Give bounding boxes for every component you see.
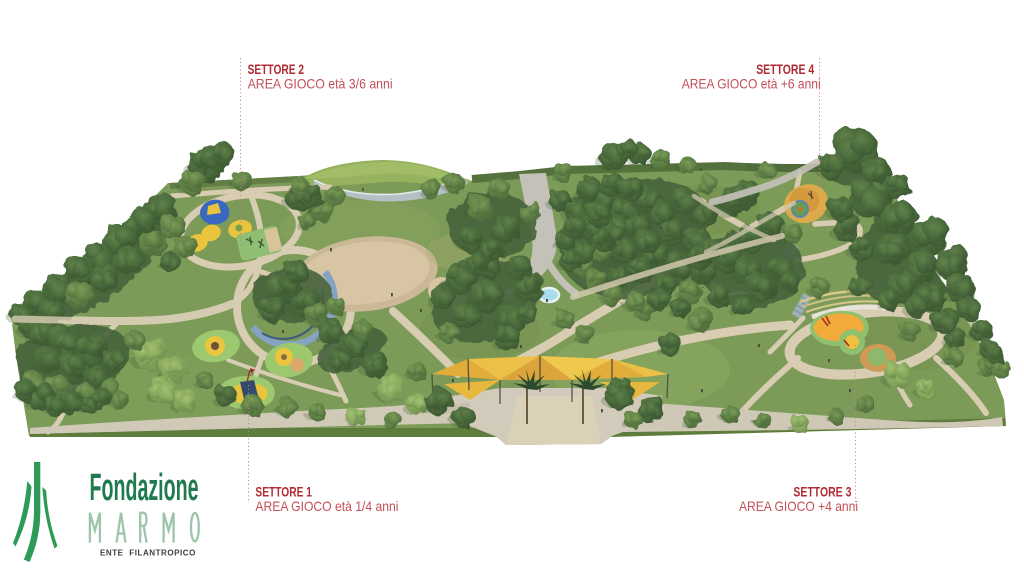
svg-text:SETTORE 3: SETTORE 3 bbox=[793, 485, 851, 500]
svg-text:AREA GIOCO +4 anni: AREA GIOCO +4 anni bbox=[739, 499, 858, 514]
svg-text:SETTORE 1: SETTORE 1 bbox=[255, 485, 312, 500]
svg-text:ENTE FILANTROPICO: ENTE FILANTROPICO bbox=[100, 549, 196, 558]
svg-text:SETTORE 2: SETTORE 2 bbox=[248, 62, 305, 77]
svg-text:AREA GIOCO età 3/6 anni: AREA GIOCO età 3/6 anni bbox=[248, 77, 393, 92]
svg-text:Fondazione: Fondazione bbox=[90, 467, 199, 509]
svg-text:AREA GIOCO età 1/4 anni: AREA GIOCO età 1/4 anni bbox=[255, 499, 398, 514]
svg-text:SETTORE 4: SETTORE 4 bbox=[756, 62, 814, 77]
svg-text:AREA GIOCO età +6 anni: AREA GIOCO età +6 anni bbox=[682, 77, 821, 92]
